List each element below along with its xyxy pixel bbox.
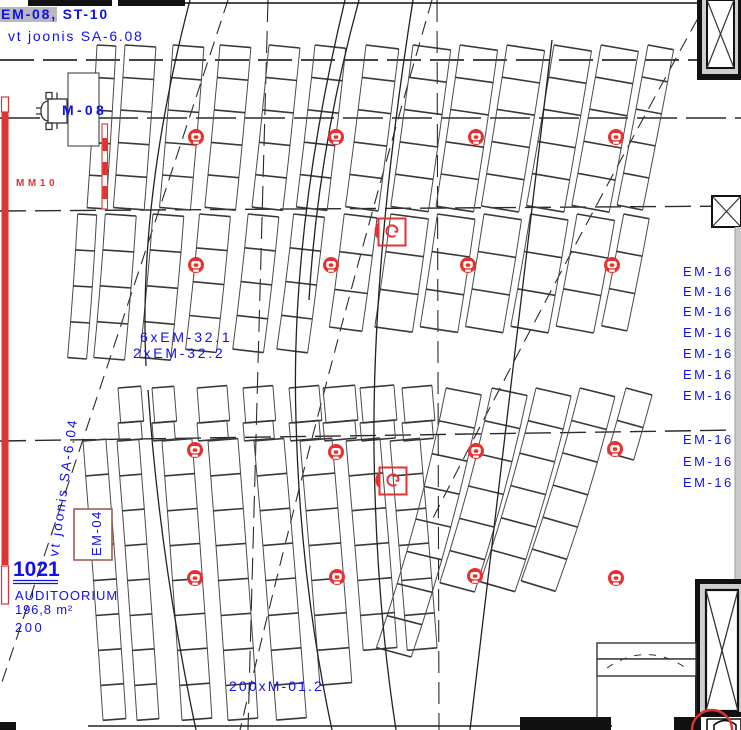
svg-text:EM-16: EM-16	[683, 264, 734, 279]
svg-text:MM10: MM10	[16, 178, 58, 189]
svg-text:M-08: M-08	[62, 102, 107, 118]
svg-text:AUDITOORIUM: AUDITOORIUM	[15, 588, 118, 603]
svg-text:EM-16: EM-16	[683, 454, 734, 469]
svg-text:6xEM-32.1: 6xEM-32.1	[140, 329, 232, 345]
svg-text:2xEM-32.2: 2xEM-32.2	[133, 345, 225, 361]
svg-text:200xM-01.2: 200xM-01.2	[229, 678, 324, 694]
svg-text:1021: 1021	[13, 558, 60, 581]
svg-text:vt joonis SA-6.08: vt joonis SA-6.08	[8, 28, 144, 44]
svg-text:EM-16: EM-16	[683, 475, 734, 490]
svg-text:EM-16: EM-16	[683, 325, 734, 340]
svg-text:EM-04: EM-04	[89, 510, 104, 556]
svg-text:196,8 m²: 196,8 m²	[15, 602, 73, 617]
svg-text:EM-16: EM-16	[683, 388, 734, 403]
svg-text:200: 200	[15, 620, 44, 635]
svg-text:EM-16: EM-16	[683, 346, 734, 361]
svg-text:EM-16: EM-16	[683, 432, 734, 447]
svg-text:EM-08, ST-10: EM-08, ST-10	[1, 6, 109, 22]
svg-text:EM-16: EM-16	[683, 284, 734, 299]
svg-text:EM-16: EM-16	[683, 304, 734, 319]
svg-text:EM-16: EM-16	[683, 367, 734, 382]
